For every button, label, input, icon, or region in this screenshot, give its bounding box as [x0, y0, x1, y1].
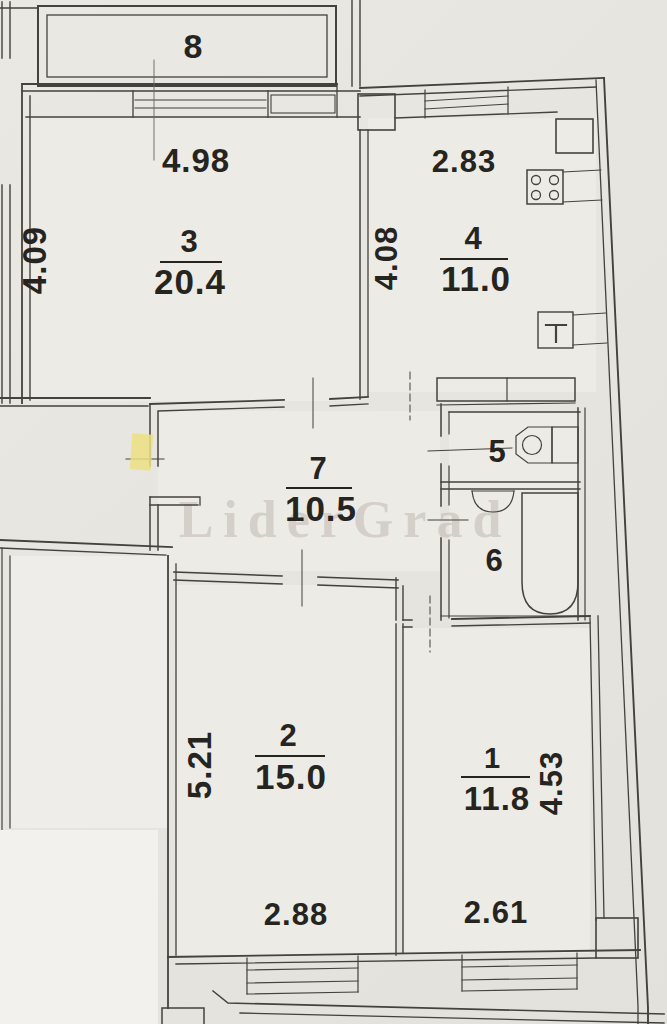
room2-number: 2 [279, 718, 296, 753]
room6-number: 6 [485, 543, 502, 578]
balcony-number: 8 [184, 27, 203, 65]
room1-number: 1 [484, 742, 500, 774]
room3-number: 3 [180, 224, 197, 259]
room4-width-dim: 2.83 [432, 144, 496, 179]
room3-window [135, 100, 266, 108]
room4-area: 11.0 [441, 259, 511, 298]
room4-window [425, 96, 508, 109]
room3-area: 20.4 [154, 262, 226, 301]
bottom-balcony-outline [213, 991, 664, 1023]
room2-area: 15.0 [255, 757, 327, 796]
room7-area: 10.5 [285, 489, 357, 528]
floor-plan-page: LiderGrad [0, 0, 667, 1024]
room7-number: 7 [309, 451, 326, 486]
room5-number: 5 [488, 434, 505, 469]
room3-top-wall [22, 84, 360, 117]
pillar-bottom-left [162, 1008, 204, 1024]
room1-width-dim: 2.61 [464, 895, 528, 930]
floor-plan-canvas: LiderGrad [0, 0, 667, 1024]
room2-depth-dim: 5.21 [181, 731, 218, 799]
room1-right-wall [590, 616, 638, 958]
room3-room4-divider [360, 130, 368, 399]
neighbor-room-floor [10, 556, 168, 828]
pillar-bottom-right [596, 918, 638, 958]
scan-blank-area [0, 830, 158, 1024]
room1-depth-dim: 4.53 [534, 751, 569, 815]
room2-width-dim: 2.88 [264, 897, 328, 932]
room4-number: 4 [464, 221, 482, 256]
room3-depth-dim: 4.09 [16, 226, 53, 294]
room1-area: 11.8 [464, 780, 530, 817]
room3-width-dim: 4.98 [162, 142, 230, 179]
bottom-wall [162, 950, 640, 1024]
highlight-mark [130, 433, 153, 470]
room4-depth-dim: 4.08 [369, 226, 404, 290]
balcony-door [271, 95, 335, 113]
